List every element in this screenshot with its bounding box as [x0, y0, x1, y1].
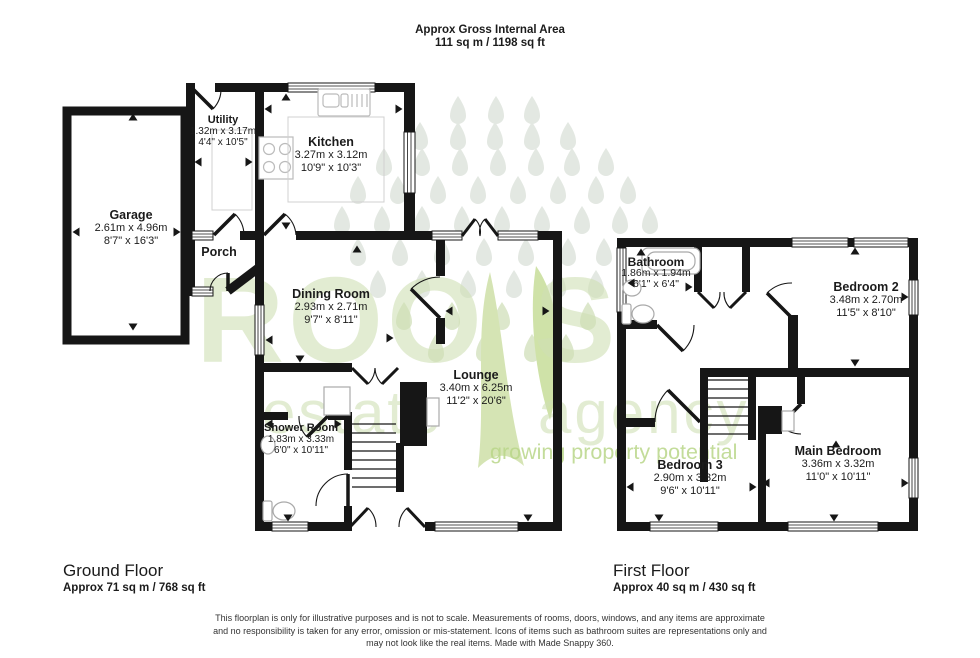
arrow-up-icon [851, 248, 860, 255]
hall-cupboard-icon [324, 387, 350, 415]
room-label-kitchen: Kitchen 3.27m x 3.12m 10'9" x 10'3" [295, 135, 368, 174]
room-label-bedroom-2: Bedroom 2 3.48m x 2.70m 11'5" x 8'10" [830, 280, 903, 319]
room-label-shower-room: Shower Room 1.83m x 3.33m 6'0" x 10'11" [264, 422, 338, 456]
bathroom-toilet-icon [622, 304, 654, 324]
ground-stairs [352, 424, 396, 487]
room-label-utility: Utility 1.32m x 3.17m 4'4" x 10'5" [190, 114, 256, 148]
lounge-fireplace-icon [427, 398, 439, 426]
disclaimer-line: may not look like the real items. Made w… [213, 637, 767, 650]
room-label-bathroom: Bathroom 1.86m x 1.94m 6'1" x 6'4" [621, 256, 690, 290]
gross-area-title: Approx Gross Internal Area [415, 24, 565, 37]
floorplan-drawing: ROO S estate agency growing property pot… [0, 0, 980, 658]
disclaimer: This floorplan is only for illustrative … [213, 612, 767, 650]
first-floor-area: Approx 40 sq m / 430 sq ft [613, 582, 756, 594]
room-label-garage: Garage 2.61m x 4.96m 8'7" x 16'3" [95, 208, 168, 247]
room-label-main-bedroom: Main Bedroom 3.36m x 3.32m 11'0" x 10'11… [795, 444, 882, 483]
gross-area-header: Approx Gross Internal Area 111 sq m / 11… [415, 24, 565, 50]
arrow-down-icon [851, 360, 860, 367]
watermark-brand-right: S [534, 252, 615, 388]
arrow-down-icon [830, 515, 839, 522]
room-label-porch: Porch [201, 245, 236, 259]
room-label-dining-room: Dining Room 2.93m x 2.71m 9'7" x 8'11" [292, 287, 370, 326]
arrow-down-icon [524, 515, 533, 522]
arrow-down-icon [655, 515, 664, 522]
arrow-right-icon [246, 158, 253, 167]
room-label-bedroom-3: Bedroom 3 2.90m x 3.32m 9'6" x 10'11" [654, 458, 727, 497]
disclaimer-line: and no responsibility is taken for any e… [213, 625, 767, 638]
arrow-left-icon [265, 105, 272, 114]
arrow-right-icon [750, 483, 757, 492]
arrow-left-icon [627, 483, 634, 492]
ground-floor-area: Approx 71 sq m / 768 sq ft [63, 582, 206, 594]
arrow-left-icon [195, 158, 202, 167]
arrow-right-icon [902, 293, 909, 302]
kitchen-sink-icon [318, 89, 370, 116]
arrow-right-icon [396, 105, 403, 114]
first-floor-label: First Floor [613, 561, 690, 581]
gross-area-value: 111 sq m / 1198 sq ft [415, 37, 565, 50]
arrow-up-icon [282, 94, 291, 101]
floorplan-page: ROO S estate agency growing property pot… [0, 0, 980, 658]
arrow-right-icon [902, 479, 909, 488]
main-bedroom-fireplace-icon [782, 411, 794, 431]
ground-floor-label: Ground Floor [63, 561, 163, 581]
disclaimer-line: This floorplan is only for illustrative … [213, 612, 767, 625]
room-label-lounge: Lounge 3.40m x 6.25m 11'2" x 20'6" [440, 368, 513, 407]
arrow-down-icon [282, 223, 291, 230]
